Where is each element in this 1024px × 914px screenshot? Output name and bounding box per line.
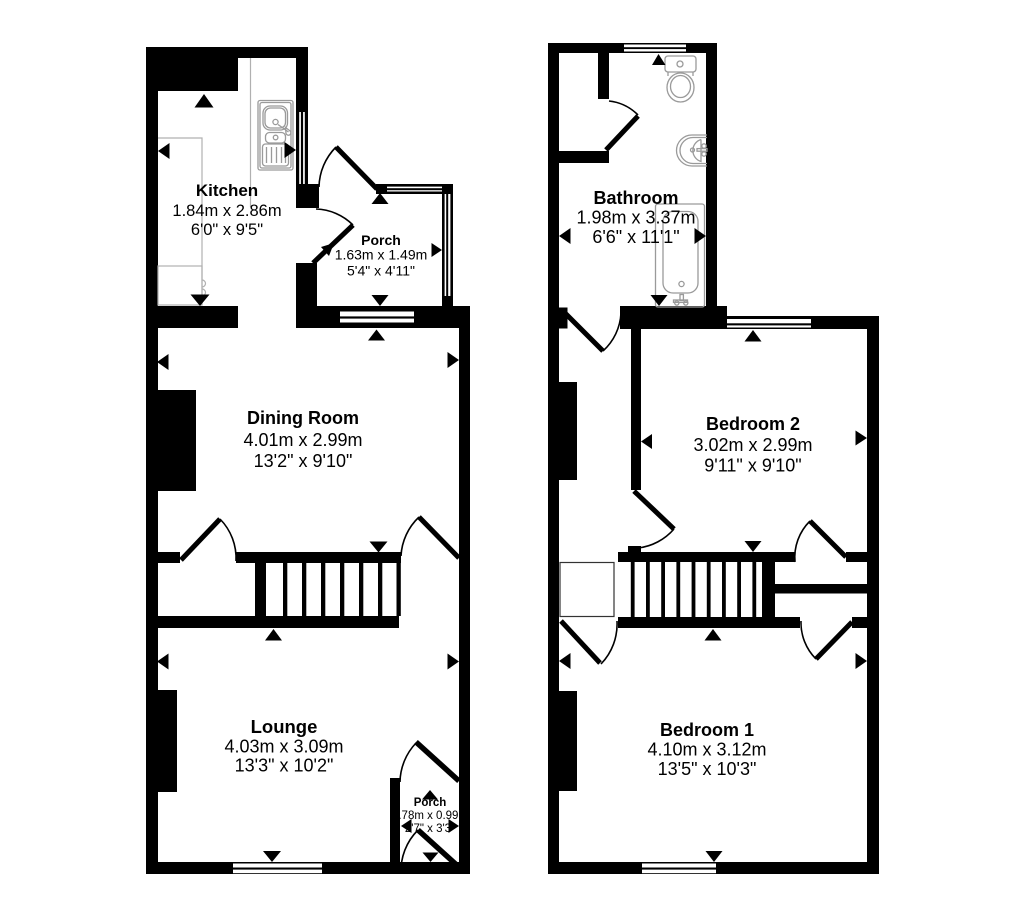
svg-text:4.03m x 3.09m: 4.03m x 3.09m (224, 737, 343, 757)
svg-text:Bedroom 2: Bedroom 2 (706, 414, 800, 434)
svg-text:0.78m x 0.99m: 0.78m x 0.99m (392, 810, 468, 822)
svg-text:13'5" x 10'3": 13'5" x 10'3" (658, 759, 757, 779)
svg-text:5'4" x 4'11": 5'4" x 4'11" (347, 263, 415, 279)
svg-text:6'6" x 11'1": 6'6" x 11'1" (592, 227, 679, 247)
svg-text:Dining Room: Dining Room (247, 408, 359, 428)
svg-text:2'7" x 3'3": 2'7" x 3'3" (405, 823, 455, 835)
svg-text:4.01m x 2.99m: 4.01m x 2.99m (243, 430, 362, 450)
svg-text:1.98m x 3.37m: 1.98m x 3.37m (576, 208, 695, 228)
svg-text:3.02m x 2.99m: 3.02m x 2.99m (693, 435, 812, 455)
svg-text:Bathroom: Bathroom (594, 188, 679, 208)
svg-text:1.63m x 1.49m: 1.63m x 1.49m (335, 247, 428, 263)
svg-text:Lounge: Lounge (251, 716, 318, 737)
svg-text:1.84m x 2.86m: 1.84m x 2.86m (172, 202, 281, 220)
svg-text:6'0" x 9'5": 6'0" x 9'5" (191, 221, 263, 239)
svg-text:4.10m x 3.12m: 4.10m x 3.12m (647, 740, 766, 760)
svg-text:9'11" x 9'10": 9'11" x 9'10" (704, 456, 801, 476)
svg-text:Kitchen: Kitchen (196, 181, 258, 200)
svg-text:Bedroom 1: Bedroom 1 (660, 720, 754, 740)
svg-text:13'3" x 10'2": 13'3" x 10'2" (235, 756, 334, 776)
svg-text:Porch: Porch (414, 797, 447, 809)
svg-text:13'2" x 9'10": 13'2" x 9'10" (254, 451, 353, 471)
